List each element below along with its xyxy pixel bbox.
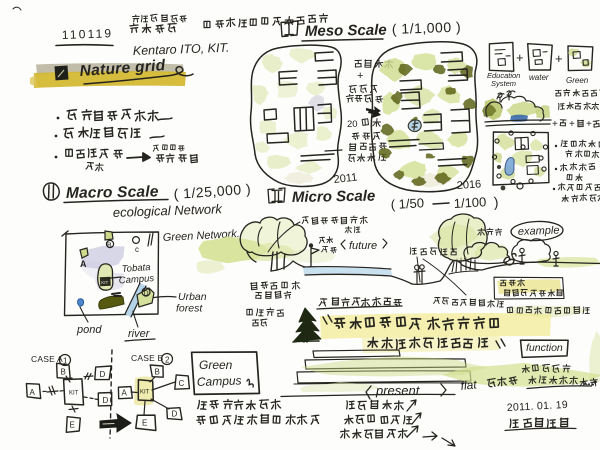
svg-text:function: function [526, 342, 563, 354]
svg-text:A: A [80, 259, 87, 269]
svg-text:Green: Green [566, 76, 589, 85]
svg-text:B: B [155, 368, 160, 377]
svg-text:KIT: KIT [69, 391, 79, 397]
svg-text:D: D [100, 370, 106, 379]
svg-text:future: future [349, 240, 377, 252]
svg-text:C: C [179, 379, 185, 388]
svg-text:river: river [128, 328, 151, 340]
svg-text:CASE A: CASE A [31, 354, 63, 364]
svg-text:CASE B: CASE B [131, 353, 164, 363]
svg-text:water: water [529, 73, 549, 82]
svg-text:D: D [103, 396, 109, 405]
svg-text:flat: flat [460, 377, 478, 393]
svg-text:+: + [555, 51, 563, 66]
svg-text:Micro Scale: Micro Scale [292, 188, 376, 206]
svg-text:+: + [569, 119, 575, 130]
svg-text:D: D [144, 291, 149, 298]
svg-text:+: + [552, 119, 558, 130]
svg-text:A: A [122, 389, 128, 398]
svg-text:Urban: Urban [178, 291, 207, 303]
svg-text:2: 2 [165, 356, 170, 365]
svg-text:present: present [375, 383, 421, 398]
svg-text:( 1/50: ( 1/50 [390, 195, 424, 212]
svg-text:pond: pond [76, 324, 102, 336]
svg-text:2016: 2016 [456, 178, 481, 192]
svg-text:KIT: KIT [101, 280, 108, 285]
svg-text:+: + [586, 119, 592, 130]
svg-text:example: example [518, 225, 560, 238]
svg-text:+: + [357, 70, 363, 82]
svg-text:2011: 2011 [333, 172, 358, 186]
svg-text:E: E [142, 419, 147, 428]
svg-text:A: A [30, 388, 36, 397]
svg-text:+: + [516, 50, 524, 65]
svg-text:Green: Green [199, 358, 233, 372]
svg-text:( 1/1,000 ): ( 1/1,000 ) [392, 19, 462, 37]
svg-text:System: System [491, 79, 516, 88]
svg-text:20: 20 [347, 119, 358, 130]
svg-text:KIT: KIT [140, 390, 150, 396]
svg-text:Campus: Campus [197, 373, 242, 389]
svg-text:110119: 110119 [62, 26, 114, 42]
svg-text:E: E [70, 421, 75, 430]
svg-text:B: B [61, 368, 66, 377]
svg-text:D: D [172, 410, 178, 419]
svg-text:1/100: 1/100 [453, 194, 486, 211]
svg-text:): ) [493, 194, 499, 210]
svg-text:c: c [135, 245, 139, 254]
svg-text:Meso Scale: Meso Scale [305, 22, 387, 40]
svg-text:forest: forest [176, 303, 203, 315]
svg-text:B: B [107, 243, 112, 250]
